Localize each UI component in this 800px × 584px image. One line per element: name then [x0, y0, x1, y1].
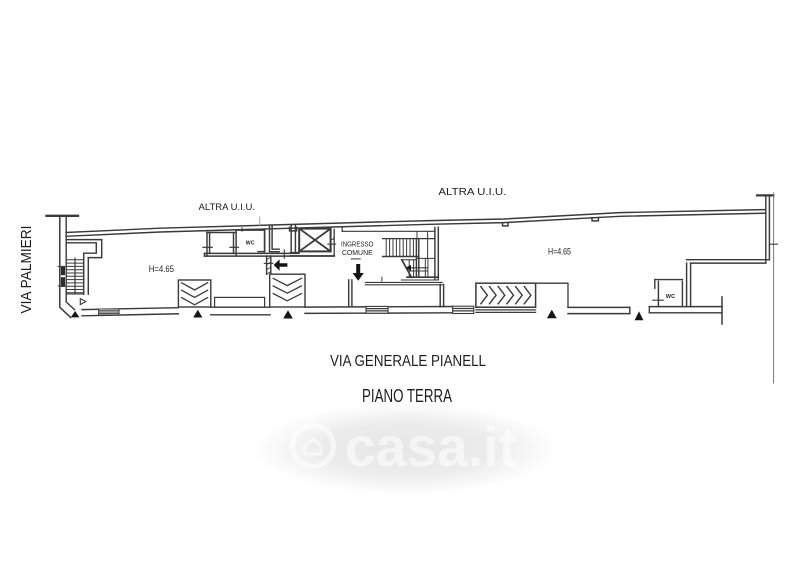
- svg-text:H=4.65: H=4.65: [548, 246, 571, 256]
- svg-text:ALTRA U.I.U.: ALTRA U.I.U.: [438, 187, 506, 198]
- svg-text:VIA GENERALE PIANELL: VIA GENERALE PIANELL: [330, 353, 486, 370]
- svg-text:H=4.65: H=4.65: [149, 263, 174, 274]
- svg-text:INGRESSO: INGRESSO: [341, 239, 373, 248]
- svg-text:WC: WC: [246, 241, 255, 247]
- svg-text:WC: WC: [666, 294, 675, 300]
- svg-text:PIANO TERRA: PIANO TERRA: [362, 386, 452, 406]
- svg-text:casa.it: casa.it: [345, 415, 517, 478]
- svg-text:VIA PALMIERI: VIA PALMIERI: [18, 226, 35, 314]
- svg-text:ALTRA U.I.U.: ALTRA U.I.U.: [199, 202, 256, 212]
- svg-text:COMUNE: COMUNE: [342, 248, 373, 257]
